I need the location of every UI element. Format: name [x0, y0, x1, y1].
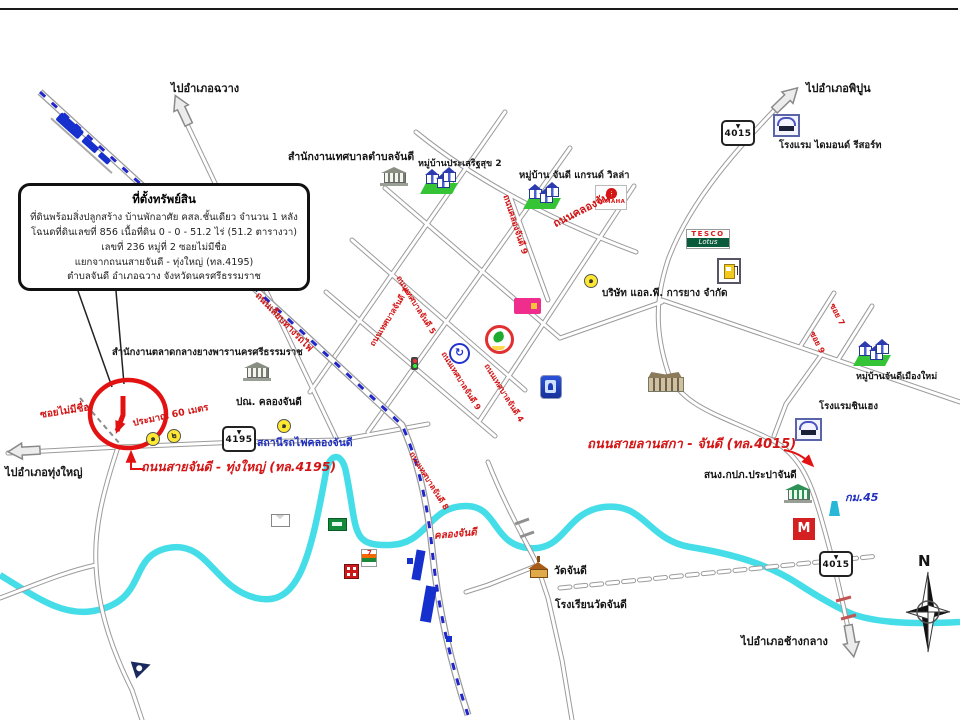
label-wat-chandi: วัดจันดี	[554, 565, 587, 577]
map-canvas: ที่ตั้งทรัพย์สิน ที่ดินพร้อมสิ่งปลูกสร้า…	[0, 0, 960, 720]
atm-booth-icon	[328, 518, 347, 531]
direction-label-chawang: ไปอำเภอฉวาง	[171, 83, 239, 96]
direction-label-thungyai: ไปอำเภอทุ่งใหญ่	[5, 467, 83, 480]
info-box-title: ที่ตั้งทรัพย์สิน	[21, 191, 307, 209]
tesco-lotus-sign-icon: TESCOLotus	[686, 229, 730, 249]
highway-shield-4195: ▼4195	[222, 426, 256, 452]
traffic-light-icon	[411, 357, 418, 370]
road-label-chandi-thungyai: ถนนสายจันดี - ทุ่งใหญ่ (ทล.4195)	[141, 460, 336, 474]
label-lp-company: บริษัท แอล.พี. การยาง จำกัด	[602, 288, 728, 300]
label-municipality: สำนักงานเทศบาลตำบลจันดี	[288, 151, 414, 163]
tesco-wordmark: TESCO	[687, 230, 729, 238]
highway-shield-4015-south: ▼4015	[819, 551, 853, 577]
map-base-layer	[0, 0, 960, 720]
lotus-wordmark: Lotus	[687, 238, 729, 247]
hotel-icon	[773, 114, 800, 137]
label-prasertsuk-village: หมู่บ้านประเสริฐสุข 2	[418, 159, 502, 169]
label-km45: กม.45	[845, 492, 878, 505]
direction-label-phipun: ไปอำเภอพิปูน	[806, 83, 871, 96]
shield-number: 4015	[821, 561, 851, 570]
municipality-building-icon	[380, 167, 408, 186]
road-label-lansaka-chandi: ถนนสายลานสกา - จันดี (ทล.4015)	[587, 438, 796, 453]
hotel-icon	[795, 418, 822, 441]
map-marker: ๑	[277, 419, 291, 433]
info-box-line: ตำบลจันดี อำเภอฉวาง จังหวัดนครศรีธรรมราช	[21, 270, 307, 285]
compass-north-label: N	[918, 553, 931, 570]
direction-label-changklang: ไปอำเภอช้างกลาง	[741, 636, 828, 649]
village-houses-icon	[853, 342, 891, 368]
info-box-line: เลขที่ 236 หมู่ที่ 2 ซอยไม่มีชื่อ	[21, 241, 307, 256]
infobox-pointer-lines	[78, 291, 124, 387]
label-waterworks: สนง.กปภ.ประปาจันดี	[704, 470, 797, 482]
river-khlong-chandi	[0, 457, 960, 623]
seven-numeral: 7	[367, 549, 372, 557]
label-post-office: ปณ. คลองจันดี	[236, 397, 302, 409]
shield-number: 4195	[224, 436, 254, 445]
temple-icon	[526, 556, 550, 575]
label-diamond-resort: โรงแรม ไดมอนด์ รีสอร์ท	[779, 141, 882, 152]
village-houses-icon	[420, 170, 458, 196]
label-school: โรงเรียนวัดจันดี	[555, 599, 627, 611]
arrow-chawang	[168, 92, 196, 128]
arrow-thungyai	[8, 442, 41, 460]
arrow-changklang	[840, 624, 861, 658]
m-shop-logo-icon: M	[793, 518, 815, 540]
railway-station-icon	[344, 564, 359, 579]
label-shinheng-hotel: โรงแรมชินเฮง	[819, 402, 878, 413]
info-box-line: แยกจากถนนสายจันดี - ทุ่งใหญ่ (ทล.4195)	[21, 256, 307, 271]
property-pin-arrow	[117, 396, 123, 431]
seven-eleven-icon: 7	[361, 549, 377, 567]
village-houses-icon	[523, 185, 561, 211]
property-info-box: ที่ตั้งทรัพย์สิน ที่ดินพร้อมสิ่งปลูกสร้า…	[18, 183, 310, 291]
highway-shield-4015: ▼4015	[721, 120, 755, 146]
label-railway-station: สถานีรถไฟคลองจันดี	[257, 437, 353, 449]
map-marker: ๒	[167, 429, 181, 443]
shield-number: 4015	[723, 130, 753, 139]
bangkok-bank-icon	[540, 375, 562, 399]
waterworks-building-icon	[784, 484, 812, 503]
map-marker: ๑	[146, 432, 160, 446]
label-grandvilla-village: หมู่บ้าน จันดี แกรนด์ วิลล่า	[519, 171, 630, 182]
compass-rose	[906, 572, 950, 652]
gas-station-icon	[717, 258, 741, 284]
info-box-line: ที่ดินพร้อมสิ่งปลูกสร้าง บ้านพักอาศัย คส…	[21, 211, 307, 226]
kasikorn-bank-icon	[485, 325, 514, 354]
post-office-icon	[271, 514, 290, 527]
thanachart-bank-icon	[514, 298, 541, 314]
label-muangmai-village: หมู่บ้านจันดีเมืองใหม่	[856, 372, 937, 382]
rubber-market-building-icon	[243, 362, 271, 381]
info-box-line: โฉนดที่ดินเลขที่ 856 เนื้อที่ดิน 0 - 0 -…	[21, 226, 307, 241]
label-rubber-market: สำนักงานตลาดกลางยางพารานครศรีธรรมราช	[112, 348, 303, 359]
train-icon	[50, 109, 120, 174]
map-marker: ๑	[584, 274, 598, 288]
factory-building-icon	[648, 377, 684, 392]
